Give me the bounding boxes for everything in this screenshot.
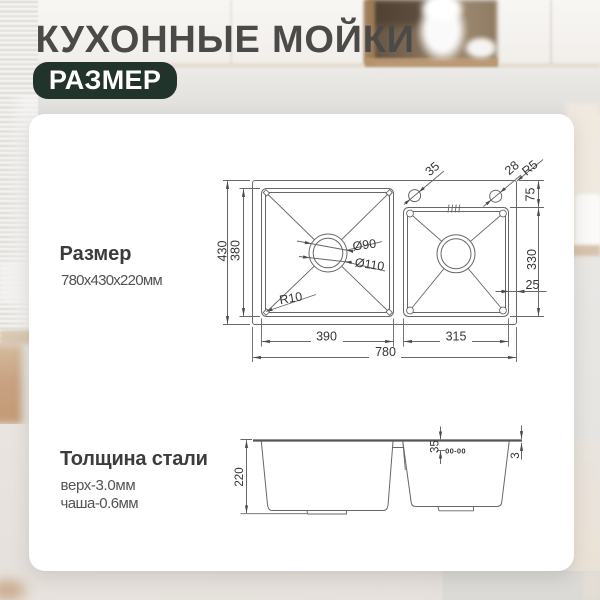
svg-text:Ø90: Ø90	[352, 236, 377, 253]
svg-text:380: 380	[229, 240, 243, 261]
svg-text:3: 3	[510, 452, 522, 458]
svg-text:35: 35	[423, 159, 443, 179]
svg-text:220: 220	[234, 467, 246, 486]
svg-text:R5: R5	[519, 157, 540, 178]
svg-text:R10: R10	[278, 289, 303, 307]
svg-text:390: 390	[316, 329, 337, 343]
svg-text:430: 430	[215, 241, 229, 262]
svg-text:330: 330	[525, 249, 539, 270]
svg-text:00-00: 00-00	[445, 447, 466, 456]
svg-text:315: 315	[446, 329, 467, 343]
svg-text:Ø110: Ø110	[354, 256, 385, 274]
svg-text:75: 75	[524, 188, 538, 202]
svg-text:780: 780	[375, 345, 396, 359]
svg-text:25: 25	[526, 278, 540, 292]
svg-text:35: 35	[430, 440, 442, 453]
